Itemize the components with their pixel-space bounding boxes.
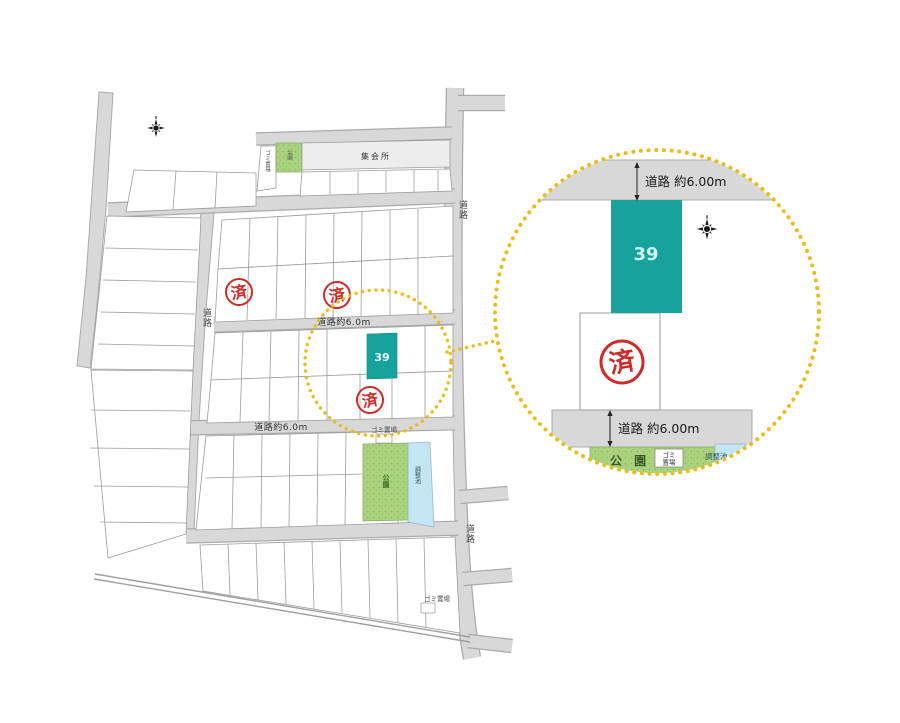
plot-39: 39 [367, 333, 397, 379]
park-label: 公園 [382, 474, 390, 489]
park-plot-top: 公園 [276, 143, 302, 172]
pond-label: 調整池 [414, 465, 421, 484]
garbage-mid-label: ゴミ置場 [371, 425, 398, 434]
road-label-right-top: 道路 [457, 199, 468, 220]
detail-road-width-top-label: 道路 約6.00m [645, 174, 726, 189]
compass-icon [147, 116, 165, 137]
plot-39-number: 39 [374, 351, 389, 364]
plot-lines [90, 146, 460, 633]
road-label-left: 道路 [201, 307, 212, 328]
detail-park-label: 公 園 [610, 454, 650, 468]
detail-garbage-box: ゴミ 置場 [655, 449, 683, 467]
park-area: 公園 [363, 443, 408, 521]
park-top-label: 公園 [286, 149, 293, 161]
compass-icon-detail [697, 215, 718, 239]
detail-view: 39 道路 約6.00m 道路 約6.00m 公 園 ゴミ 置場 [495, 150, 819, 475]
plot-39-detail: 39 [611, 200, 682, 313]
garbage-top-label: ゴミ置場 [264, 149, 271, 174]
road-width-label-1: 道路約6.0m [317, 316, 371, 328]
detail-garbage-line2: 置場 [663, 458, 677, 467]
meeting-hall-label: 集会所 [361, 151, 391, 161]
plot-map-image: 公園 ゴミ置場 集会所 公園 調整池 39 道路約6.0m 道路約6.0m ゴミ… [0, 0, 900, 719]
road-width-label-2: 道路約6.0m [254, 421, 308, 433]
road-label-right-bottom: 道路 [464, 523, 475, 544]
garbage-bottom-label: ゴミ置場 [424, 594, 451, 603]
pond-area: 調整池 [408, 442, 434, 527]
meeting-hall-plot: 集会所 [302, 140, 450, 170]
main-map: 公園 ゴミ置場 集会所 公園 調整池 39 道路約6.0m 道路約6.0m ゴミ… [77, 88, 512, 658]
plot-39-detail-number: 39 [633, 244, 658, 265]
site-plan-svg: 公園 ゴミ置場 集会所 公園 調整池 39 道路約6.0m 道路約6.0m ゴミ… [0, 0, 900, 719]
garbage-box [421, 603, 435, 613]
detail-road-width-bottom-label: 道路 約6.00m [618, 421, 699, 436]
